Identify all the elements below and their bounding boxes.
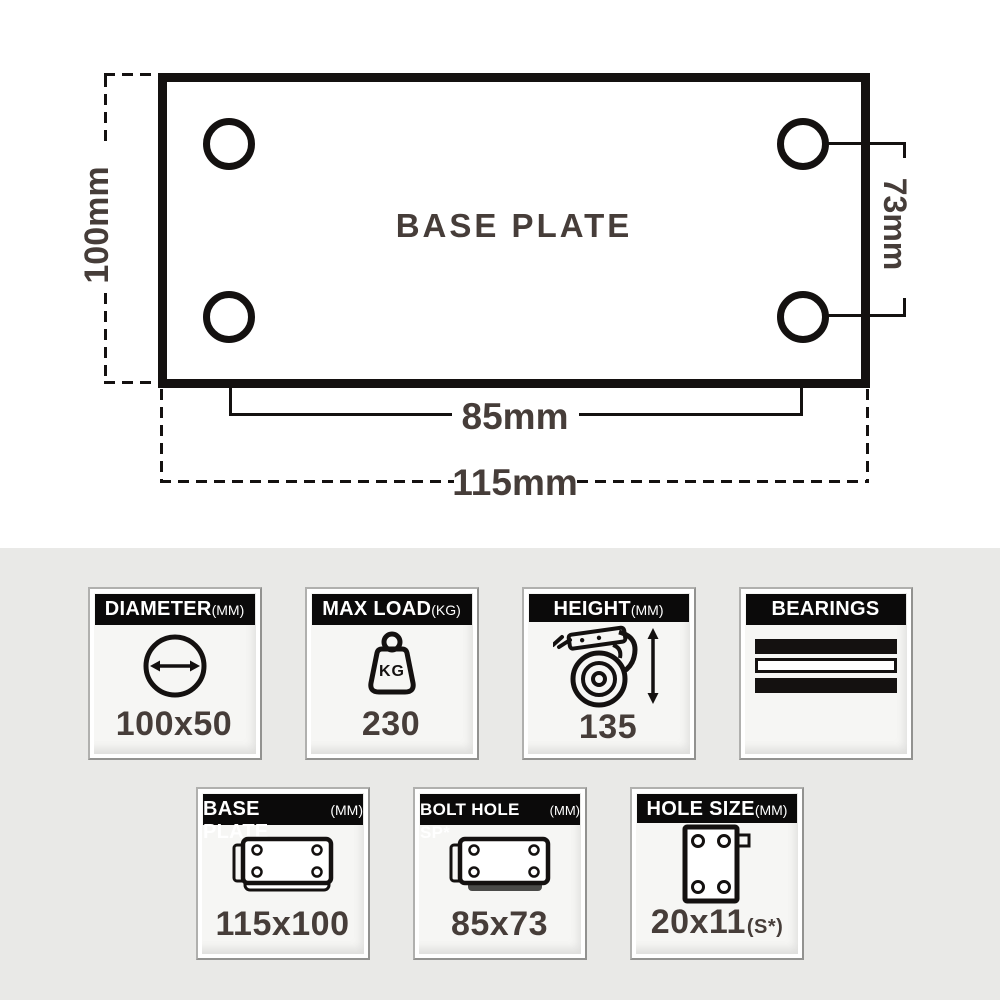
dim-label-100mm: 100mm	[75, 160, 119, 290]
spec-cards-section: DIAMETER(MM) 100x50 MAX LOAD(KG)	[0, 548, 1000, 1000]
card-base-plate-value: 115x100	[216, 907, 351, 941]
card-diameter-value: 100x50	[116, 707, 233, 741]
card-height-value-text: 135	[579, 710, 637, 744]
card-max-load: MAX LOAD(KG) KG 230	[305, 587, 479, 760]
max-load-kettlebell-icon: KG	[312, 625, 472, 707]
bolt-hole-spacing-icon	[420, 825, 580, 907]
dim-85-tick-left	[229, 387, 232, 416]
card-hole-size-value: 20x11(S*)	[651, 905, 784, 941]
dim-85-tick-right	[800, 387, 803, 416]
base-plate-icon	[203, 825, 363, 907]
card-bearings-header: BEARINGS	[746, 594, 906, 625]
bolt-hole-bottom-right	[777, 291, 829, 343]
card-base-plate-value-text: 115x100	[216, 907, 350, 941]
card-max-load-header: MAX LOAD(KG)	[312, 594, 472, 625]
card-base-plate: BASE PLATE(MM) 115x100	[196, 787, 370, 960]
dim-73-leader-bottom	[828, 314, 906, 317]
card-hole-size-value-suffix: (S*)	[747, 910, 783, 944]
dim-100-line-lower	[104, 293, 107, 384]
card-bolt-hole-spacing-header: BOLT HOLE SP*(MM)	[420, 794, 580, 825]
card-hole-size-unit: (MM)	[755, 799, 788, 822]
dim-115-line-right	[577, 480, 868, 483]
card-bolt-hole-spacing: BOLT HOLE SP*(MM) 85x73	[413, 787, 587, 960]
card-base-plate-unit: (MM)	[330, 799, 363, 822]
card-diameter-title: DIAMETER	[105, 598, 212, 621]
card-height: HEIGHT(MM)	[522, 587, 696, 760]
spec-cards-row-2: BASE PLATE(MM) 115x100 BOLT HOLE SP*	[0, 787, 1000, 960]
base-plate-drawing: BASE PLATE 100mm 73mm 85mm 115mm	[0, 0, 1000, 548]
card-bolt-hole-spacing-unit: (MM)	[550, 799, 580, 822]
bolt-hole-bottom-left	[203, 291, 255, 343]
card-bearings-title: BEARINGS	[772, 598, 880, 621]
card-max-load-unit: (KG)	[431, 599, 461, 622]
dim-85-line-right	[579, 413, 803, 416]
dim-label-85mm: 85mm	[430, 396, 600, 438]
caster-spec-infographic: { "colors": { "ink": "#141110", "dim_tex…	[0, 0, 1000, 1000]
plate-title: BASE PLATE	[158, 207, 870, 245]
dim-100-line-upper	[104, 76, 107, 148]
hole-size-icon	[637, 823, 797, 905]
dim-115-line-left	[160, 480, 454, 483]
card-max-load-value: 230	[362, 707, 421, 741]
card-max-load-value-text: 230	[362, 707, 420, 741]
dim-100-tick-top	[104, 73, 158, 76]
card-height-header: HEIGHT(MM)	[529, 594, 689, 622]
card-height-title: HEIGHT	[553, 598, 630, 621]
caster-height-icon	[529, 622, 689, 710]
card-diameter-value-text: 100x50	[116, 707, 232, 741]
dim-85-line-left	[229, 413, 452, 416]
card-bolt-hole-spacing-value: 85x73	[451, 907, 549, 941]
spec-cards-row-1: DIAMETER(MM) 100x50 MAX LOAD(KG)	[0, 587, 1000, 760]
card-bearings: BEARINGS	[739, 587, 913, 760]
diameter-icon	[95, 625, 255, 707]
card-bearings-value	[825, 707, 826, 741]
card-hole-size: HOLE SIZE(MM) 20x11(S*)	[630, 787, 804, 960]
dim-label-73mm: 73mm	[875, 169, 915, 279]
bearings-icon	[746, 625, 906, 707]
dim-115-tick-left	[160, 389, 163, 483]
card-height-unit: (MM)	[631, 599, 664, 622]
card-diameter-header: DIAMETER(MM)	[95, 594, 255, 625]
dim-73-tick-top	[903, 142, 906, 158]
dim-label-115mm: 115mm	[430, 462, 600, 504]
bolt-hole-top-right	[777, 118, 829, 170]
card-bolt-hole-spacing-value-text: 85x73	[451, 907, 548, 941]
card-base-plate-header: BASE PLATE(MM)	[203, 794, 363, 825]
bolt-hole-top-left	[203, 118, 255, 170]
card-diameter: DIAMETER(MM) 100x50	[88, 587, 262, 760]
dim-100-tick-bottom	[104, 381, 158, 384]
kg-badge-text: KG	[379, 663, 405, 680]
dim-115-tick-right	[866, 389, 869, 483]
card-max-load-title: MAX LOAD	[322, 598, 431, 621]
dim-73-tick-bottom	[903, 298, 906, 314]
card-diameter-unit: (MM)	[212, 599, 245, 622]
dim-73-leader-top	[828, 142, 906, 145]
card-hole-size-value-text: 20x11	[651, 905, 746, 939]
card-hole-size-header: HOLE SIZE(MM)	[637, 794, 797, 823]
card-height-value: 135	[579, 710, 638, 744]
card-hole-size-title: HOLE SIZE	[647, 798, 755, 821]
